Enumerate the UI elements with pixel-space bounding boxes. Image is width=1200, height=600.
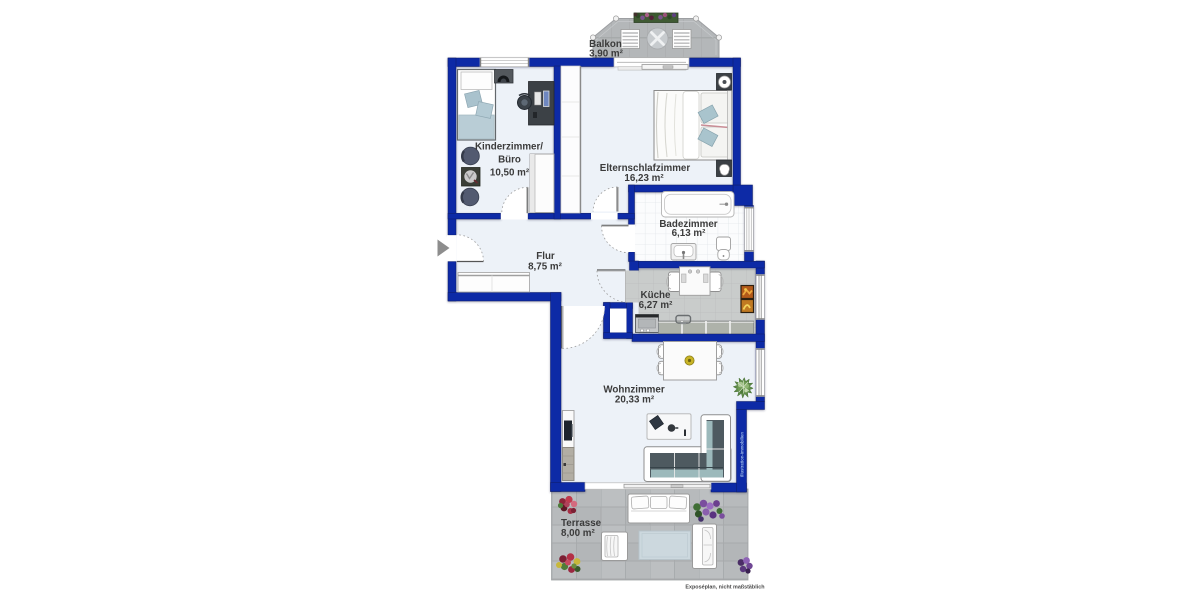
svg-text:Flur: Flur <box>536 251 555 262</box>
svg-text:3,90 m²: 3,90 m² <box>589 49 624 60</box>
svg-text:Exposéplan, nicht maßstäblich: Exposéplan, nicht maßstäblich <box>685 585 764 591</box>
svg-text:10,50 m²: 10,50 m² <box>490 168 530 179</box>
svg-text:8,00 m²: 8,00 m² <box>561 528 596 539</box>
svg-text:Illustration-Immobilien: Illustration-Immobilien <box>740 432 745 477</box>
svg-text:Kinderzimmer/: Kinderzimmer/ <box>475 142 543 153</box>
svg-text:8,75 m²: 8,75 m² <box>528 262 563 273</box>
svg-text:6,13 m²: 6,13 m² <box>672 228 707 239</box>
svg-text:16,23 m²: 16,23 m² <box>624 173 664 184</box>
svg-text:20,33 m²: 20,33 m² <box>615 395 655 406</box>
svg-text:6,27 m²: 6,27 m² <box>639 300 674 311</box>
svg-text:Büro: Büro <box>498 155 521 166</box>
